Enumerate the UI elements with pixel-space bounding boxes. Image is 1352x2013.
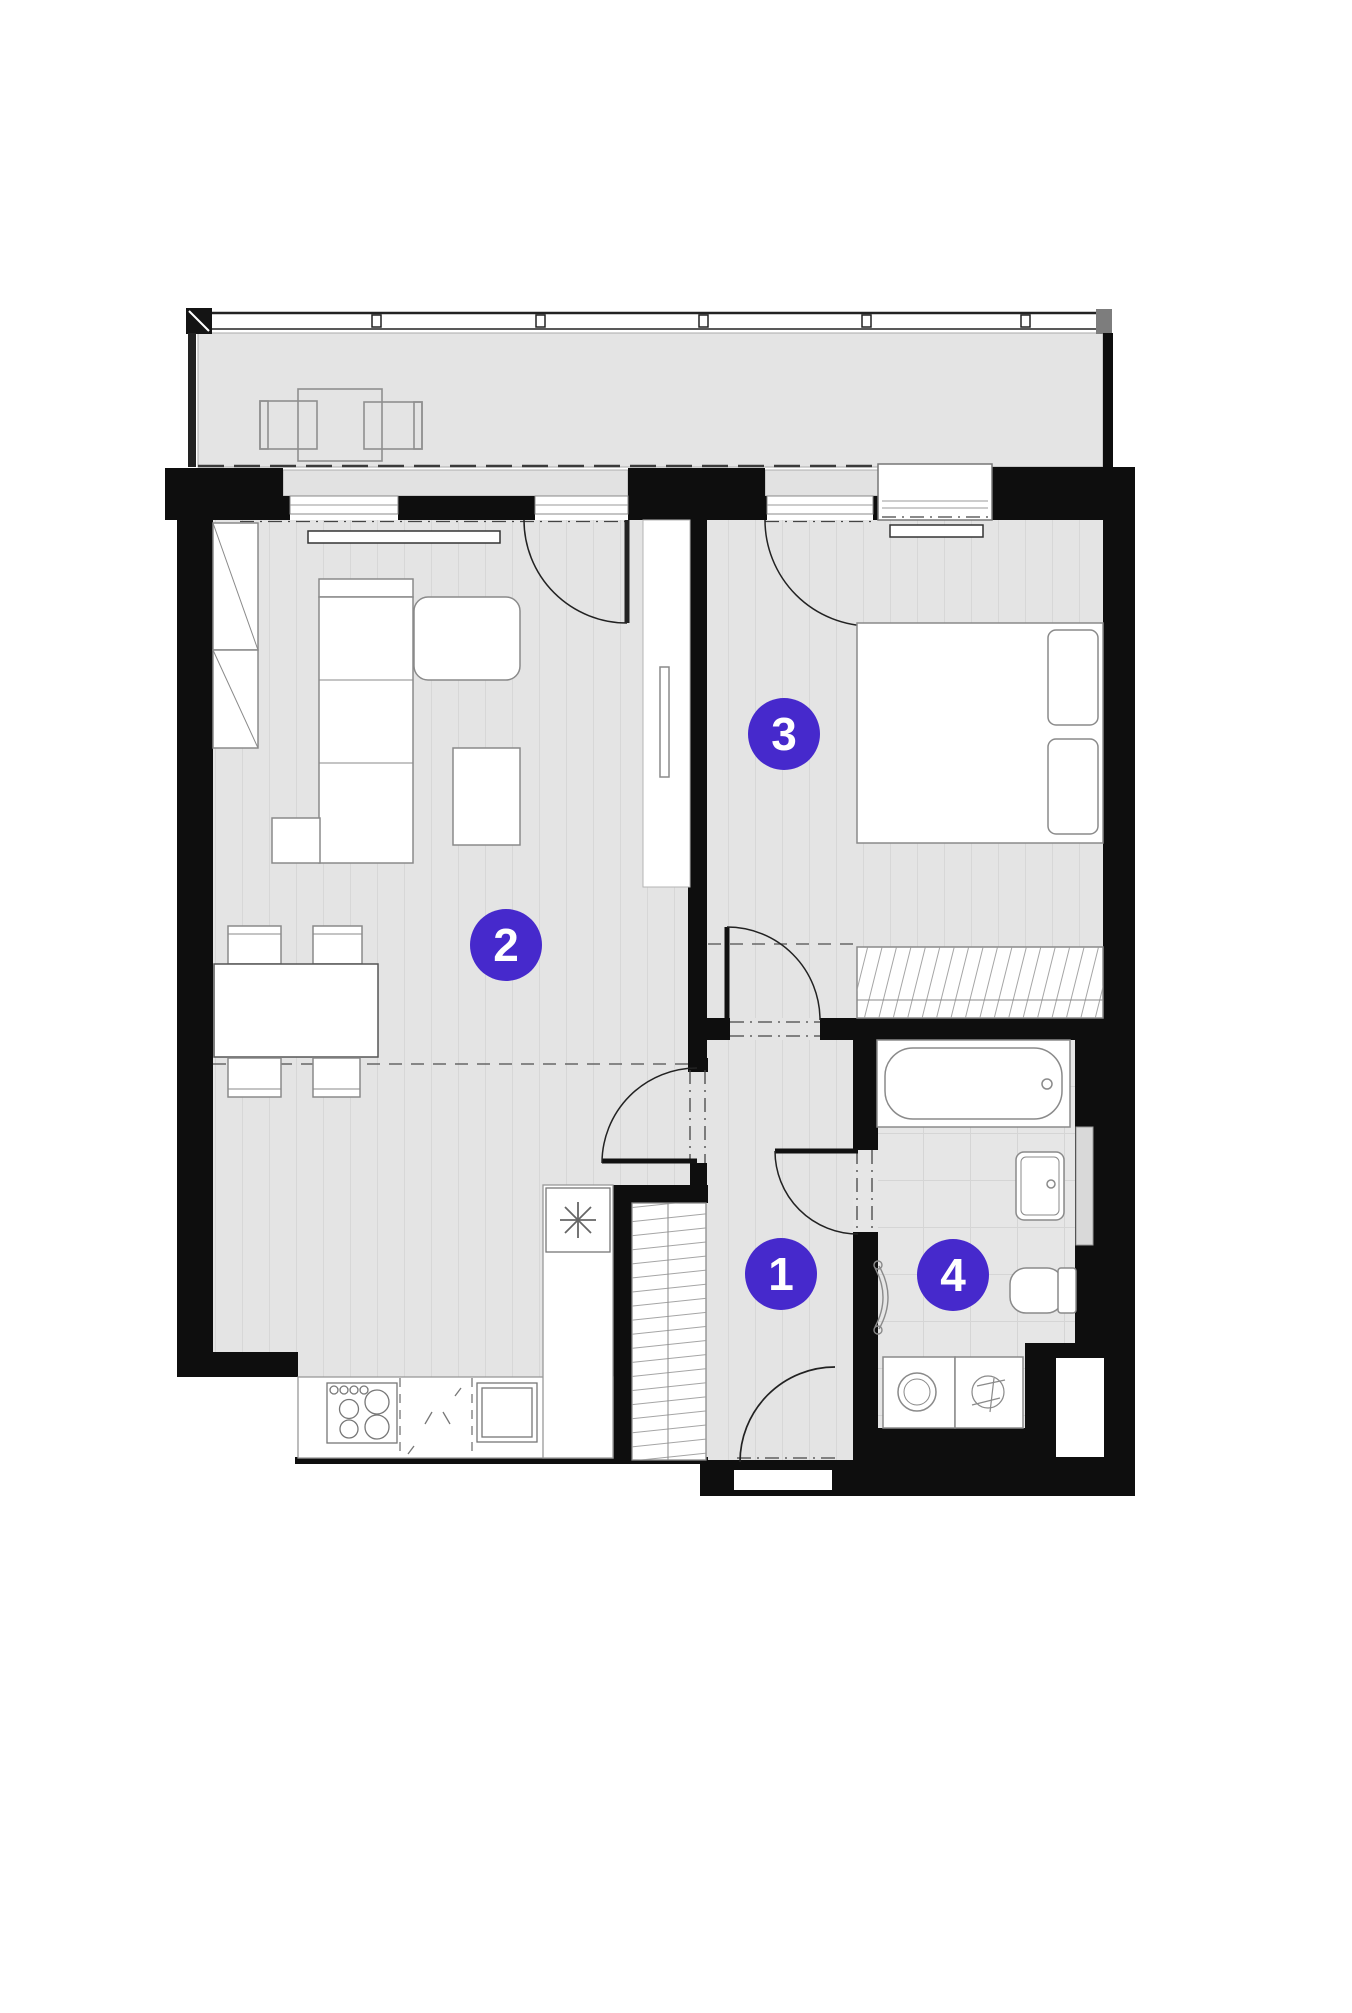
- dining-chair-2: [313, 926, 362, 964]
- room-marker-2-label: 2: [493, 919, 519, 971]
- railing-posts: [372, 315, 1030, 327]
- duct-shaft-white: [1056, 1358, 1104, 1457]
- wall-top-seg2: [398, 496, 535, 520]
- hall-closet: [632, 1203, 706, 1460]
- pillow-2: [1048, 739, 1098, 834]
- floor-plan-canvas: 1 2 3 4: [0, 0, 1352, 2013]
- balcony-door-bedroom-glazing: [767, 496, 873, 514]
- wall-divider-post: [688, 1058, 708, 1072]
- floor-plan-drawing: 1 2 3 4: [0, 0, 1352, 2013]
- coffee-table: [453, 748, 520, 845]
- room-marker-1-label: 1: [768, 1248, 794, 1300]
- window-bedroom: [878, 464, 992, 520]
- balcony-door-living-glazing: [535, 496, 628, 514]
- railing-right-cap: [1096, 309, 1112, 334]
- room-marker-3[interactable]: 3: [748, 698, 820, 770]
- balcony-left-edge: [188, 333, 196, 467]
- window-sill-left: [283, 470, 628, 496]
- tv-unit-pocket: [643, 520, 690, 887]
- side-table: [272, 818, 320, 863]
- window-sill-shelf-bedroom: [890, 525, 983, 537]
- dining-chair-4: [313, 1058, 360, 1097]
- dining-table: [214, 964, 378, 1057]
- fridge-icon: [560, 1202, 596, 1238]
- washing-machine: [883, 1357, 955, 1428]
- dining-chair-3: [228, 1058, 281, 1097]
- room-marker-2[interactable]: 2: [470, 909, 542, 981]
- duct-shaft-gray: [1076, 1127, 1093, 1245]
- wall-bottom-left-step: [177, 1352, 298, 1377]
- doorway-floor-bedroom: [730, 1018, 820, 1040]
- window-sill-shelf-living: [308, 531, 500, 543]
- room-marker-3-label: 3: [771, 708, 797, 760]
- toilet: [1010, 1268, 1076, 1313]
- wall-parapet-pier-mid: [628, 468, 765, 496]
- wall-bedroom-bottom-left: [690, 1018, 730, 1040]
- wall-hall-bath-upper: [853, 1040, 878, 1150]
- room-marker-1[interactable]: 1: [745, 1238, 817, 1310]
- wall-hall-left-lower: [690, 1163, 707, 1203]
- wall-right-bedroom: [1103, 496, 1135, 1018]
- bathroom-sink: [1016, 1152, 1064, 1220]
- wall-left: [177, 468, 213, 1352]
- pillow-1: [1048, 630, 1098, 725]
- wall-divider-living-bedroom: [688, 520, 707, 1070]
- wardrobe-living: [213, 523, 258, 748]
- bathtub: [877, 1040, 1070, 1127]
- stove: [327, 1383, 397, 1443]
- room-marker-4[interactable]: 4: [917, 1239, 989, 1311]
- kitchen-sink: [477, 1383, 537, 1442]
- entrance-door-leaf[interactable]: [734, 1470, 832, 1490]
- wall-right-balcony-strip: [1103, 333, 1113, 467]
- wall-kitchen-column: [613, 1185, 632, 1460]
- window-sill-right: [765, 470, 878, 496]
- dining-chair-1: [228, 926, 281, 964]
- balcony-floor: [198, 333, 1103, 467]
- wardrobe-bedroom: [857, 947, 1103, 1018]
- wall-top-seg3: [628, 496, 767, 520]
- room-marker-4-label: 4: [940, 1249, 966, 1301]
- dryer: [955, 1357, 1023, 1428]
- window-living: [290, 496, 398, 514]
